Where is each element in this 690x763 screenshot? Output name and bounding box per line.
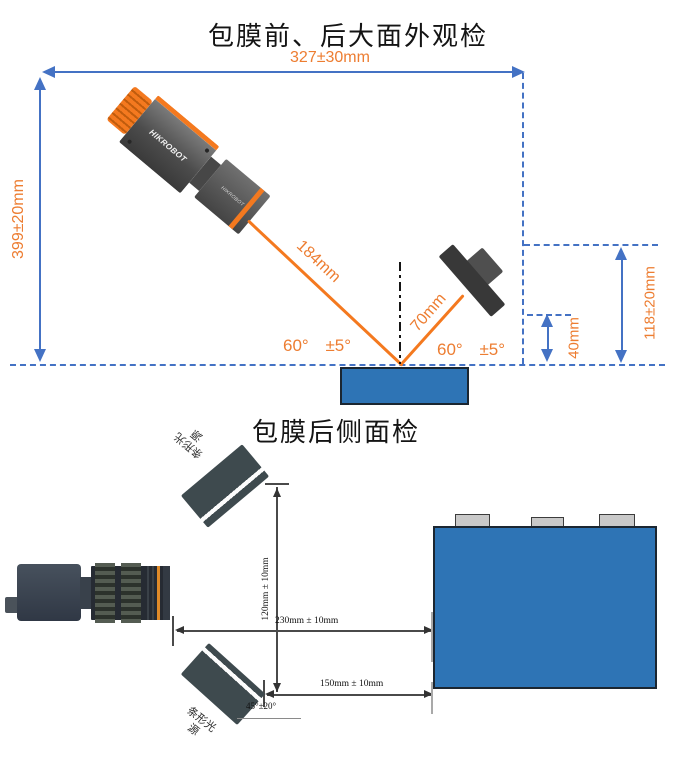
right-angle-value: 60° xyxy=(437,340,463,359)
width-dimension-label: 327±30mm xyxy=(290,49,370,67)
width-dimension-line xyxy=(52,71,514,73)
height-dimension-label: 399±20mm xyxy=(10,179,28,259)
arrow-left-icon xyxy=(175,626,184,634)
arrow-down-icon xyxy=(541,349,553,362)
left-angle-value: 60° xyxy=(283,336,309,355)
camera-brand-label: HIKROBOT xyxy=(147,128,188,164)
camera-extension-tick xyxy=(172,616,174,646)
light-distance-label: 150mm ± 10mm xyxy=(320,679,383,689)
light-offset-label: 40mm xyxy=(566,317,583,359)
side-camera-lens xyxy=(91,566,170,620)
right-angle-tolerance: ±5° xyxy=(479,340,505,359)
right-angle-label: 60° ±5° xyxy=(437,340,505,360)
screw-icon xyxy=(204,147,210,153)
arrow-up-icon xyxy=(273,488,281,497)
vertical-dim-cap-line xyxy=(265,483,289,485)
light-distance-line xyxy=(267,694,431,696)
lens-front xyxy=(163,566,170,620)
light-height-label: 118±20mm xyxy=(642,266,659,340)
left-angle-tolerance: ±5° xyxy=(325,336,351,355)
top-bar-light-label: 条形光 源 xyxy=(172,420,214,461)
lens-orange-ring xyxy=(157,566,160,620)
left-angle-label: 60° ±5° xyxy=(283,336,351,356)
light-height-dimension-line xyxy=(621,253,623,353)
camera-distance-label: 230mm ± 10mm xyxy=(275,616,338,626)
camera-distance-line xyxy=(177,630,431,632)
arrow-up-icon xyxy=(615,247,627,260)
lens-focus-ring xyxy=(95,563,115,623)
battery-side-view xyxy=(433,526,657,689)
angle-reference-line xyxy=(237,718,301,719)
arrow-down-icon xyxy=(34,349,46,362)
lens-brand-label: HIKROBOT xyxy=(219,185,245,208)
center-axis-line xyxy=(399,262,401,364)
bottom-diagram-title: 包膜后侧面检 xyxy=(252,412,420,449)
vertical-distance-label: 120mm ± 10mm xyxy=(261,557,271,620)
screw-icon xyxy=(127,139,133,145)
inspected-object xyxy=(340,367,469,405)
inspection-diagram-page: 包膜前、后大面外观检 327±30mm 399±20mm 118±20mm 40… xyxy=(0,0,690,763)
top-diagram-title: 包膜前、后大面外观检 xyxy=(208,16,488,53)
right-dashed-extension-line xyxy=(522,73,524,364)
arrow-up-icon xyxy=(541,314,553,327)
lens-stripe xyxy=(147,566,149,620)
height-dimension-line xyxy=(39,84,41,354)
vertical-dimension-line xyxy=(276,487,278,692)
beam-length-label: 184mm xyxy=(292,237,343,287)
light-angle-label: 45°±20° xyxy=(246,701,276,711)
arrow-up-icon xyxy=(34,77,46,90)
lens-zoom-ring xyxy=(121,563,141,623)
bottom-bar-light-label: 条形光 源 xyxy=(176,705,218,745)
top-camera: HIKROBOT HIKROBOT xyxy=(102,81,273,238)
arrow-down-icon xyxy=(615,350,627,363)
worktable-dashed-line xyxy=(10,364,665,366)
lens-stripe xyxy=(152,566,154,620)
arrow-left-icon xyxy=(265,690,274,698)
arrow-down-icon xyxy=(273,683,281,692)
light-top-dashed-line xyxy=(524,244,658,246)
side-camera-body xyxy=(17,564,81,621)
